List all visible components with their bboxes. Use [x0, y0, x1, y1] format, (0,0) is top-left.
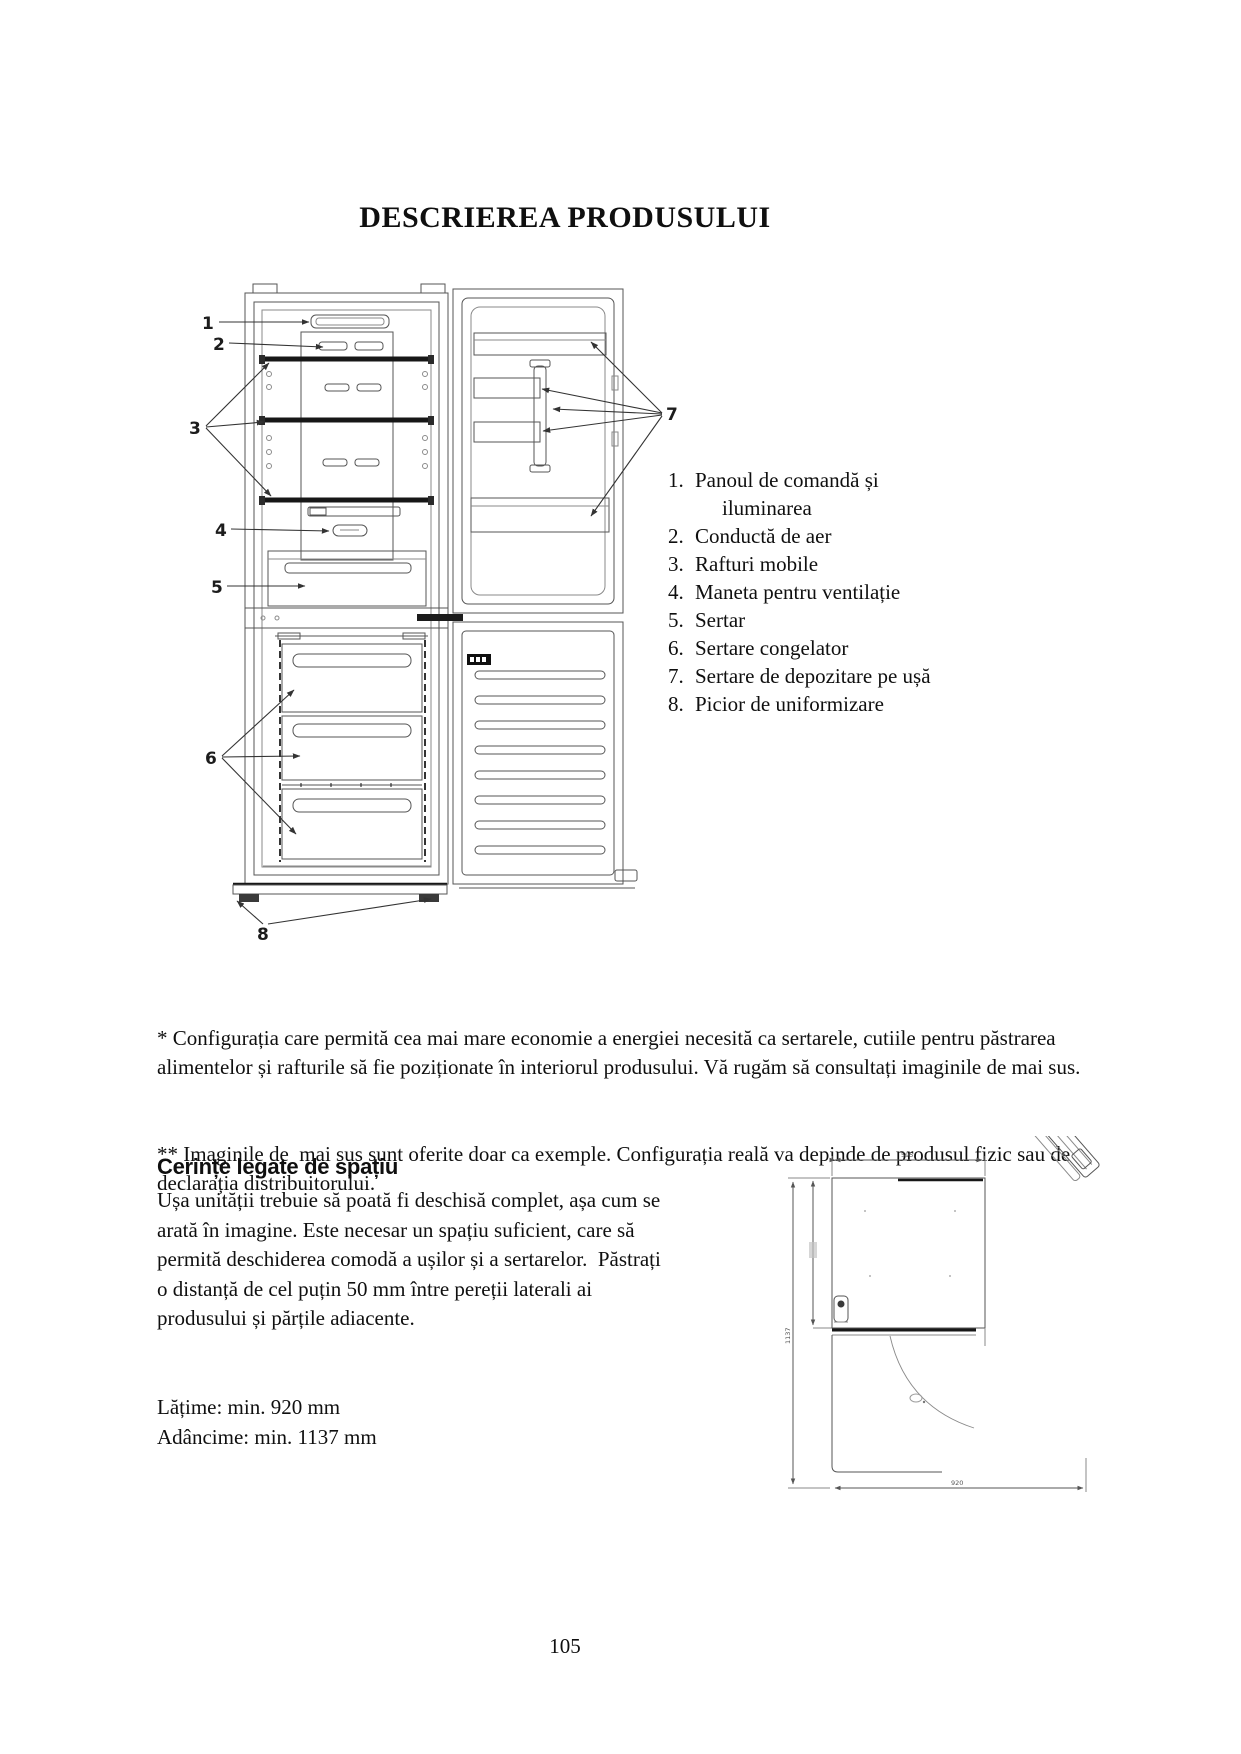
item-number: 5. [668, 606, 695, 634]
list-item: 4.Maneta pentru ventilație [668, 578, 972, 606]
page-number: 105 [157, 1634, 973, 1659]
item-number: 3. [668, 550, 695, 578]
freezer-compartment [263, 633, 431, 866]
item-number: 8. [668, 690, 695, 718]
item-label: Conductă de aer [695, 524, 831, 548]
depth-requirement: Adâncime: min. 1137 mm [157, 1422, 377, 1452]
fridge-door-open [453, 289, 623, 613]
callout-3: 3 [189, 419, 201, 439]
item-label: Picior de uniformizare [695, 692, 884, 716]
width-dimension-label: 595 [901, 1151, 913, 1159]
list-item: 2.Conductă de aer [668, 522, 972, 550]
section-heading-space-requirements: Cerințe legate de spațiu [157, 1154, 398, 1180]
manual-page: DESCRIEREA PRODUSULUI [0, 0, 1241, 1754]
cabinet [233, 284, 448, 902]
item-label: Panoul de comandă și iluminarea [695, 468, 879, 520]
shelves [259, 355, 434, 505]
item-number: 7. [668, 662, 695, 690]
width-requirement: Lățime: min. 920 mm [157, 1392, 377, 1422]
callout-5: 5 [211, 578, 223, 598]
space-requirements-text: Ușa unității trebuie să poată fi deschis… [157, 1186, 662, 1334]
depth-dimension-label: 1137 [784, 1327, 792, 1344]
callout-1: 1 [202, 314, 214, 334]
callout-8: 8 [257, 925, 269, 945]
item-label: Sertare congelator [695, 636, 848, 660]
list-item: 1.Panoul de comandă și iluminarea [668, 466, 972, 522]
callout-4: 4 [215, 521, 227, 541]
list-item: 5.Sertar [668, 606, 972, 634]
dimension-annotations: 595 1137 920 [784, 1151, 1086, 1492]
item-label: Sertar [695, 608, 745, 632]
page-title: DESCRIEREA PRODUSULUI [157, 201, 973, 235]
clearance-dimension-label: 920 [951, 1479, 963, 1487]
list-item: 8.Picior de uniformizare [668, 690, 972, 718]
item-label: Sertare de depozitare pe ușă [695, 664, 931, 688]
clearance-diagram: 595 1137 920 [770, 1136, 1100, 1496]
item-number: 6. [668, 634, 695, 662]
freezer-door-open [453, 622, 637, 888]
fridge-top-view [832, 1136, 1100, 1472]
callout-7: 7 [666, 405, 678, 425]
parts-list: 1.Panoul de comandă și iluminarea 2.Cond… [668, 466, 972, 718]
callout-6: 6 [205, 749, 217, 769]
dimension-lines: Lățime: min. 920 mm Adâncime: min. 1137 … [157, 1392, 377, 1452]
fridge-compartment [245, 315, 463, 628]
door-ribs [475, 671, 605, 854]
list-item: 6.Sertare congelator [668, 634, 972, 662]
open-door [969, 1136, 1100, 1185]
callout-2: 2 [213, 335, 225, 355]
item-number: 4. [668, 578, 695, 606]
item-number: 1. [668, 466, 695, 494]
list-item: 7.Sertare de depozitare pe ușă [668, 662, 972, 690]
fridge-diagram: 1 2 3 4 5 6 7 8 [175, 256, 690, 948]
footnote-energy-config: * Configurația care permită cea mai mare… [157, 1024, 1149, 1082]
item-label: Rafturi mobile [695, 552, 818, 576]
dimension-label-smudge [809, 1242, 817, 1258]
item-number: 2. [668, 522, 695, 550]
list-item: 3.Rafturi mobile [668, 550, 972, 578]
item-label: Maneta pentru ventilație [695, 580, 900, 604]
